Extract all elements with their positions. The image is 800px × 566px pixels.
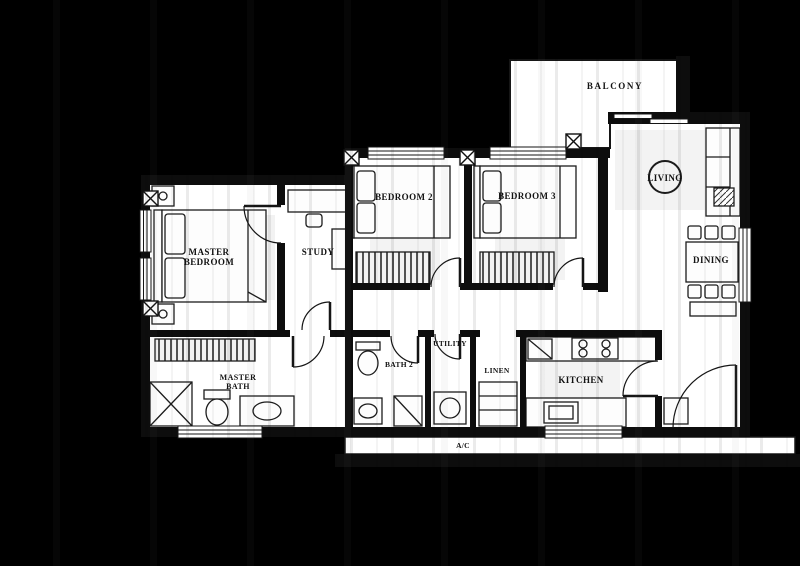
entry-cabinet [664,398,688,424]
ac-unit-icon [143,301,158,316]
bedroom3-bed [474,166,576,238]
sideboard [690,302,736,316]
window [490,147,566,159]
kitchen-counter-top [526,337,656,361]
window [140,210,151,252]
linen-shelves [479,382,517,426]
bath2-shower [394,396,422,426]
master-bath-wardrobe [155,339,255,361]
ac-unit-icon [344,150,359,165]
shower [150,382,192,426]
bath2-sink-icon [354,398,382,424]
side-table [714,188,734,206]
window [140,258,151,300]
ac-unit-icon [566,134,581,149]
master-bed [154,210,266,302]
floor-plan-drawing [0,0,800,566]
washer-icon [434,392,466,424]
ac-unit-icon [460,150,475,165]
toilet-icon [204,390,230,425]
floor-plan-page: MASTER BEDROOM STUDY BEDROOM 2 BEDROOM 3… [0,0,800,566]
window [739,228,751,302]
window [545,426,622,438]
bedroom2-bed [348,166,450,238]
bath2-toilet-icon [356,342,380,375]
ac-ledge [345,437,795,454]
stove-icon [572,338,618,359]
bedroom3-wardrobe [480,252,554,284]
kitchen-counter-bottom [526,398,626,427]
ac-unit-icon [143,191,158,206]
bedroom2-wardrobe [356,252,430,284]
window [368,147,444,159]
vanity-sink-icon [240,396,294,426]
dining-table [686,226,738,316]
window [178,426,262,438]
